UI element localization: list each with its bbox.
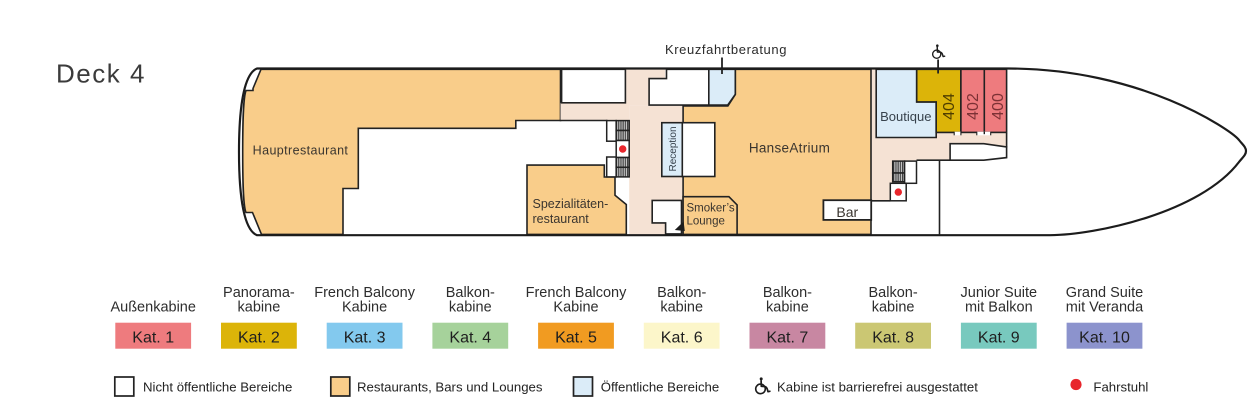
svg-text:kabine: kabine	[449, 299, 492, 315]
svg-text:Kabine ist barrierefrei ausges: Kabine ist barrierefrei ausgestattet	[777, 380, 978, 395]
svg-text:Restaurants, Bars und Lounges: Restaurants, Bars und Lounges	[357, 380, 543, 395]
svg-text:Smoker’s: Smoker’s	[687, 203, 735, 215]
svg-text:kabine: kabine	[660, 299, 703, 315]
svg-text:Öffentliche Bereiche: Öffentliche Bereiche	[601, 380, 720, 395]
svg-text:kabine: kabine	[238, 299, 281, 315]
svg-text:Fahrstuhl: Fahrstuhl	[1093, 380, 1148, 395]
svg-text:Hauptrestaurant: Hauptrestaurant	[253, 144, 349, 158]
svg-text:restaurant: restaurant	[533, 212, 590, 226]
svg-text:Kat. 1: Kat. 1	[132, 329, 174, 346]
svg-text:Kat. 10: Kat. 10	[1079, 329, 1130, 346]
svg-text:mit Balkon: mit Balkon	[965, 299, 1033, 315]
svg-text:Reception: Reception	[668, 126, 679, 171]
svg-text:Deck 4: Deck 4	[56, 59, 146, 89]
svg-text:Kat. 6: Kat. 6	[661, 329, 703, 346]
svg-text:Kat. 5: Kat. 5	[555, 329, 597, 346]
svg-text:Lounge: Lounge	[687, 216, 725, 228]
svg-text:Kabine: Kabine	[553, 299, 598, 315]
svg-text:Nicht öffentliche Bereiche: Nicht öffentliche Bereiche	[143, 380, 292, 395]
svg-text:Spezialitäten-: Spezialitäten-	[533, 197, 609, 211]
svg-text:mit Veranda: mit Veranda	[1066, 299, 1144, 315]
svg-text:Kreuzfahrtberatung: Kreuzfahrtberatung	[665, 42, 787, 57]
svg-text:kabine: kabine	[872, 299, 915, 315]
svg-text:HanseAtrium: HanseAtrium	[749, 141, 830, 156]
svg-text:402: 402	[965, 93, 982, 120]
svg-text:kabine: kabine	[766, 299, 809, 315]
svg-text:Kat. 4: Kat. 4	[449, 329, 491, 346]
svg-text:Kat. 9: Kat. 9	[978, 329, 1020, 346]
svg-text:Kat. 8: Kat. 8	[872, 329, 914, 346]
svg-text:Kat. 7: Kat. 7	[766, 329, 808, 346]
svg-text:Außenkabine: Außenkabine	[110, 299, 195, 315]
svg-text:Kat. 3: Kat. 3	[344, 329, 386, 346]
svg-text:400: 400	[990, 93, 1007, 120]
svg-text:Boutique: Boutique	[880, 109, 931, 124]
svg-text:Kat. 2: Kat. 2	[238, 329, 280, 346]
svg-text:404: 404	[941, 93, 958, 120]
svg-text:Bar: Bar	[836, 204, 858, 220]
svg-text:Kabine: Kabine	[342, 299, 387, 315]
